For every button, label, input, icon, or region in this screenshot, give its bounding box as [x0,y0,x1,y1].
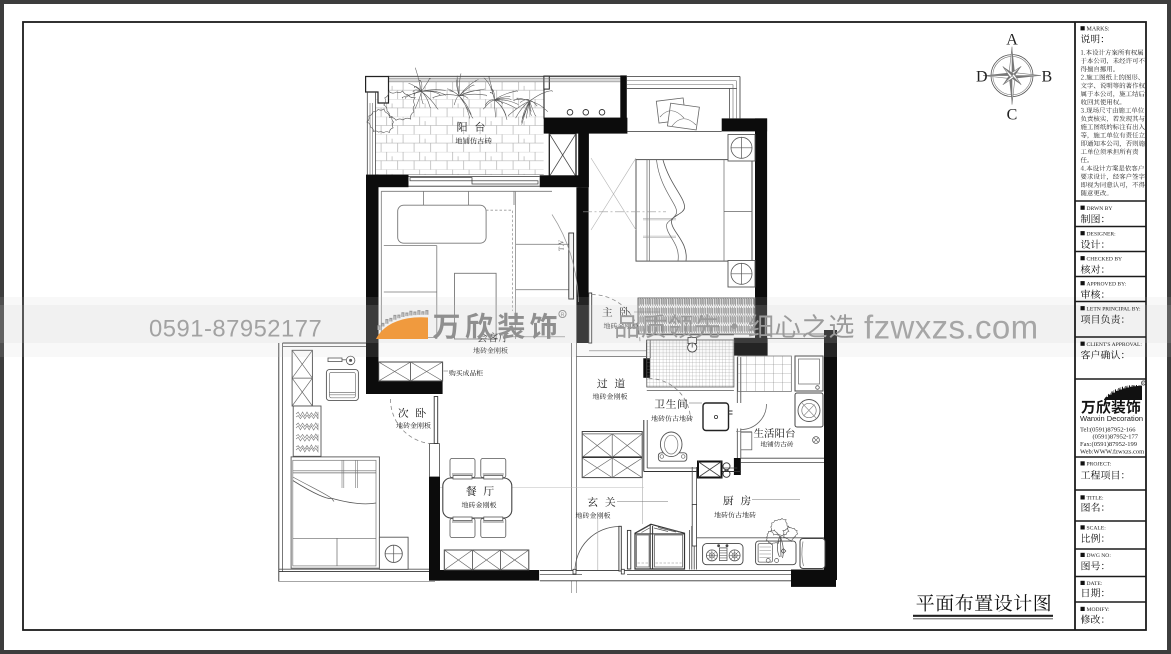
svg-text:SCALE:: SCALE: [1087,526,1107,532]
svg-text:DATE:: DATE: [1087,581,1103,587]
svg-text:DRWN BY: DRWN BY [1087,206,1113,212]
svg-text:LETN PRINCIPAL BY:: LETN PRINCIPAL BY: [1087,307,1142,313]
svg-text:DWG NO:: DWG NO: [1087,553,1112,559]
svg-text:(0591)87952-177: (0591)87952-177 [1093,434,1139,441]
svg-text:0591-87952177: 0591-87952177 [149,316,322,343]
svg-text:Web:WWW.fzwxzs.com: Web:WWW.fzwxzs.com [1080,448,1144,455]
svg-text:D: D [976,69,988,86]
svg-text:DESIGNER:: DESIGNER: [1087,232,1117,238]
svg-text:fzwxzs.com: fzwxzs.com [864,309,1039,346]
svg-text:TITLE:: TITLE: [1087,496,1105,502]
svg-text:MARKS:: MARKS: [1087,27,1110,33]
svg-text:R: R [561,313,565,319]
svg-text:MODIFY:: MODIFY: [1087,607,1111,613]
svg-text:CHECKED BY: CHECKED BY [1087,257,1123,263]
svg-text:B: B [1042,69,1053,86]
svg-text:CLIENT'S APPROVAL:: CLIENT'S APPROVAL: [1087,342,1143,348]
svg-text:Wanxin Decoration: Wanxin Decoration [1080,414,1143,423]
svg-text:PROJECT:: PROJECT: [1087,462,1112,468]
svg-text:C: C [1007,107,1018,124]
svg-text:APPROVED BY:: APPROVED BY: [1087,282,1127,288]
svg-text:Tel:(0591)87952-166: Tel:(0591)87952-166 [1080,427,1136,434]
svg-text:A: A [1006,32,1018,49]
svg-text:Fax:(0591)87952-199: Fax:(0591)87952-199 [1080,441,1137,448]
